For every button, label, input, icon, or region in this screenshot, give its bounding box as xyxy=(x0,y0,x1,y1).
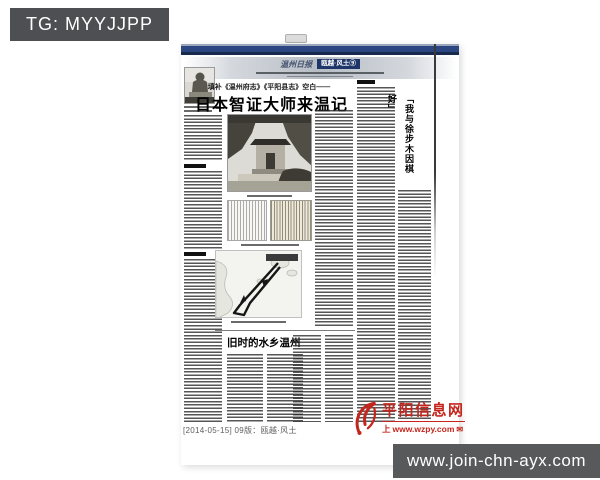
right-article-vertical-headline: 「我与徐步木因棋好」 xyxy=(399,94,416,186)
pingyang-site-logo[interactable]: 平阳信息网 上 www.wzpy.com ✉ xyxy=(352,399,466,437)
manuscript-document-right xyxy=(270,200,312,241)
edition-date-line: [2014-05-15] 09版：瓯越·风土 xyxy=(183,425,297,436)
bottom-article-headline: 旧时的水乡温州 xyxy=(227,335,289,350)
bottom-column3-text xyxy=(293,335,321,422)
bottom-column4-text xyxy=(325,335,353,422)
temple-photo-caption xyxy=(247,195,292,197)
scroll-tab[interactable] xyxy=(285,34,307,43)
route-map-illustration xyxy=(216,251,302,318)
manuscript-document-left xyxy=(227,200,267,241)
masthead-info-line2 xyxy=(287,76,353,78)
column3-text xyxy=(315,110,353,328)
bottom-column1-text xyxy=(227,354,263,422)
map-caption xyxy=(231,321,286,323)
masthead-info-line xyxy=(256,72,384,74)
page-margin-rule xyxy=(434,44,436,279)
left-column-subhead xyxy=(184,164,206,168)
column4-subhead xyxy=(357,80,375,84)
logo-url-text: www.wzpy.com xyxy=(393,424,455,434)
route-map xyxy=(215,250,302,318)
section-divider xyxy=(215,330,355,331)
logo-swoosh-icon xyxy=(352,399,380,437)
section-badge: 瓯越·风土⑨ xyxy=(317,59,360,69)
right-column-text xyxy=(398,190,431,422)
watermark-bar: www.join-chn-ayx.com xyxy=(393,444,600,478)
column4-text xyxy=(357,87,395,422)
manuscript-caption xyxy=(241,244,299,246)
temple-gate-photo xyxy=(227,114,312,192)
envelope-icon: ✉ xyxy=(456,425,463,434)
logo-site-url[interactable]: 上 www.wzpy.com ✉ xyxy=(382,421,465,435)
logo-url-prefix: 上 xyxy=(382,423,391,435)
left-column-text xyxy=(184,115,222,161)
page-top-navy-bar xyxy=(181,44,459,55)
logo-site-name: 平阳信息网 xyxy=(382,399,465,420)
left-column-subhead2 xyxy=(184,252,206,256)
masthead-band: 温州日报 瓯越·风土⑨ xyxy=(183,57,457,79)
paper-name-script: 温州日报 xyxy=(280,59,312,70)
left-column-text2 xyxy=(184,171,222,249)
temple-gate-illustration xyxy=(228,115,312,192)
source-tag-label: TG: MYYJJPP xyxy=(10,8,169,41)
